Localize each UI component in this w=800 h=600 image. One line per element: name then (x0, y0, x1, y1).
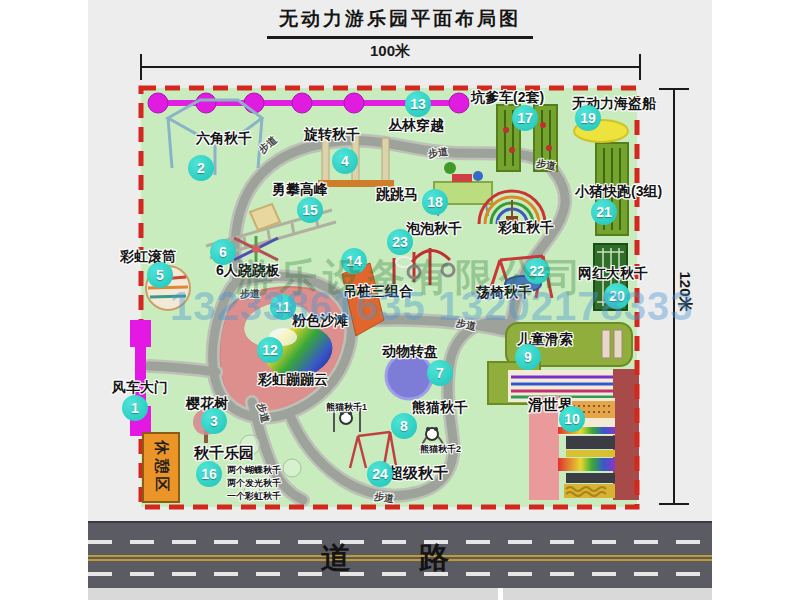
title-bar: 无动力游乐园平面布局图 (0, 6, 800, 39)
pig-run-glyph (596, 143, 628, 235)
zipline-glyph (488, 323, 632, 404)
watermark-phone: 13233861635 13202178333 (170, 284, 694, 329)
rest-area-label: 休憩区 (143, 433, 179, 502)
page-title: 无动力游乐园平面布局图 (267, 6, 533, 39)
rotating-swing-glyph (318, 134, 394, 187)
road-label: 道 路 (88, 538, 712, 579)
animal-turntable-glyph (386, 353, 432, 399)
dimension-top-label: 100米 (330, 42, 450, 61)
pirate-ship-glyph (574, 120, 628, 142)
